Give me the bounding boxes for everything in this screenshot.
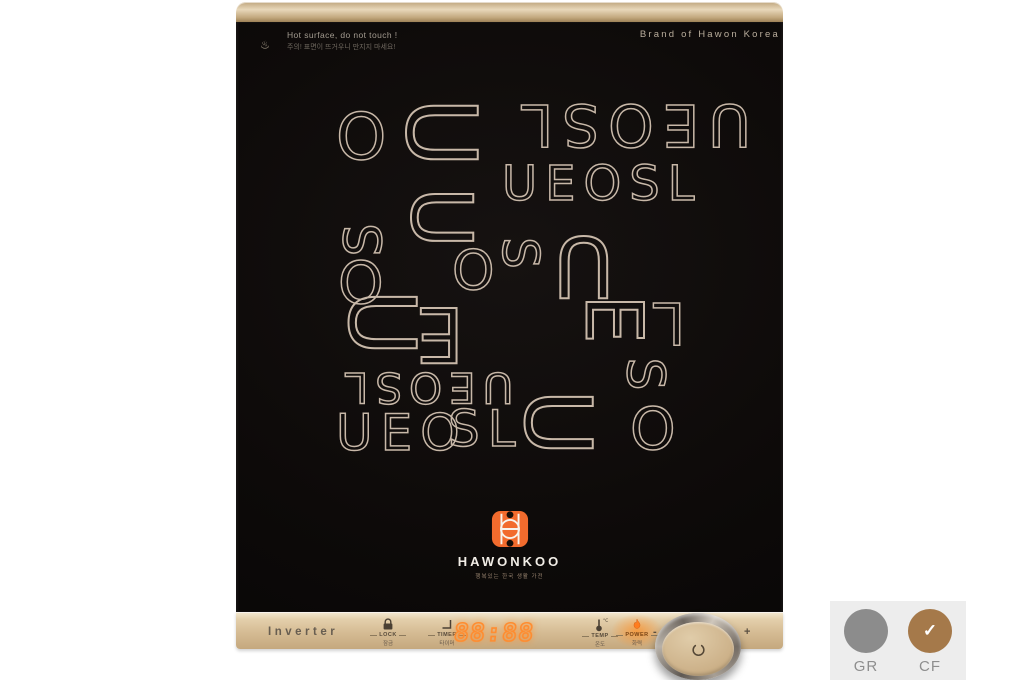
lock-label: LOCK bbox=[379, 632, 397, 638]
hot-surface-warning: ♨ Hot surface, do not touch ! 주의! 표면이 뜨거… bbox=[250, 27, 398, 54]
power-knob-face bbox=[662, 622, 734, 676]
pattern-letter: S bbox=[495, 237, 545, 277]
lock-icon bbox=[381, 618, 395, 631]
pattern-letter: UEOSL bbox=[502, 160, 702, 208]
pattern-letter: U bbox=[393, 97, 489, 182]
temp-label: TEMP bbox=[591, 633, 608, 639]
swatch-label: CF bbox=[919, 658, 941, 675]
thermometer-icon: °C bbox=[593, 618, 608, 632]
swatch-cf[interactable]: ✓CF bbox=[908, 609, 952, 680]
pattern-letter: L bbox=[644, 294, 685, 352]
pattern-letter: E bbox=[404, 296, 464, 372]
flame-icon bbox=[629, 618, 645, 631]
check-icon: ✓ bbox=[923, 621, 937, 641]
lock-button[interactable]: LOCK 잠금 bbox=[366, 618, 410, 647]
pattern-letter: E bbox=[574, 294, 652, 355]
plus-control[interactable]: + bbox=[744, 626, 750, 638]
power-label-kr: 화력 bbox=[632, 639, 642, 647]
swatch-circle-cf[interactable]: ✓ bbox=[908, 609, 952, 653]
pattern-letter: UEOSL bbox=[512, 96, 751, 154]
logo-block: HAWONKOO 행복있는 한국 생활 가전 bbox=[236, 510, 783, 580]
top-bezel bbox=[236, 2, 783, 22]
lock-label-kr: 잠금 bbox=[383, 639, 393, 647]
swatch-circle-gr[interactable] bbox=[844, 609, 888, 653]
swatch-label: GR bbox=[854, 658, 879, 675]
timer-icon bbox=[440, 618, 454, 631]
power-label: POWER bbox=[625, 632, 648, 638]
pattern-letter: O bbox=[630, 400, 685, 458]
warning-text-kr: 주의! 표면이 뜨거우니 만지지 마세요! bbox=[287, 42, 398, 52]
swatch-gr[interactable]: GR bbox=[844, 609, 888, 680]
color-swatch-panel: GR✓CF bbox=[830, 601, 966, 680]
temp-label-kr: 온도 bbox=[595, 640, 605, 648]
svg-text:°C: °C bbox=[603, 618, 608, 624]
inverter-label: Inverter bbox=[268, 626, 338, 638]
warning-text-en: Hot surface, do not touch ! bbox=[287, 30, 398, 40]
svg-text:♨: ♨ bbox=[260, 39, 270, 52]
power-knob[interactable] bbox=[655, 613, 741, 680]
logo-name: HAWONKOO bbox=[458, 554, 561, 569]
brand-tagline: Brand of Hawon Korea bbox=[540, 29, 780, 40]
pattern-letter: U bbox=[511, 389, 603, 471]
hawonkoo-logo-icon bbox=[491, 510, 529, 548]
logo-tagline: 행복있는 한국 생활 가전 bbox=[475, 572, 543, 580]
hot-surface-warning-icon: ♨ bbox=[250, 27, 280, 54]
power-symbol-icon bbox=[690, 641, 707, 658]
seven-segment-display: 88:88 bbox=[452, 618, 531, 647]
pattern-letter: S bbox=[619, 357, 671, 398]
